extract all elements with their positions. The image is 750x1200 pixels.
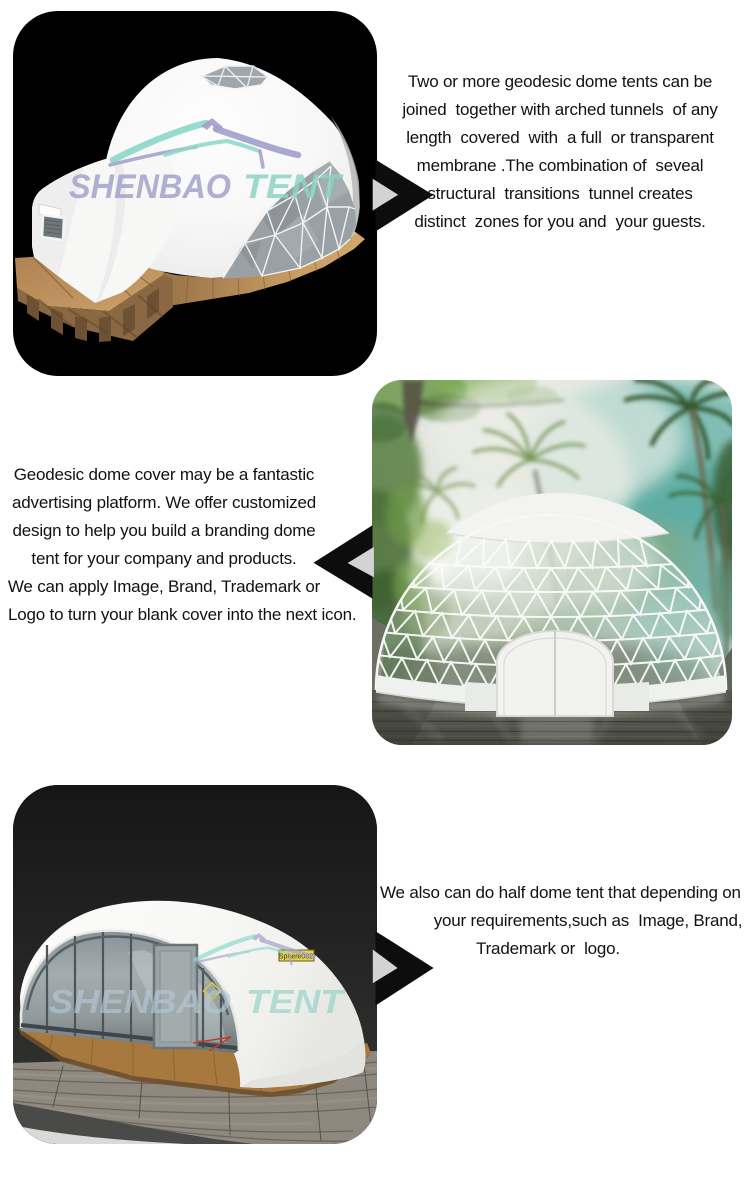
svg-text:SHENBAO: SHENBAO [69,168,231,206]
svg-text:SHENBAO: SHENBAO [49,983,231,1020]
svg-text:TENT: TENT [243,168,345,206]
svg-text:TENT: TENT [246,983,346,1020]
